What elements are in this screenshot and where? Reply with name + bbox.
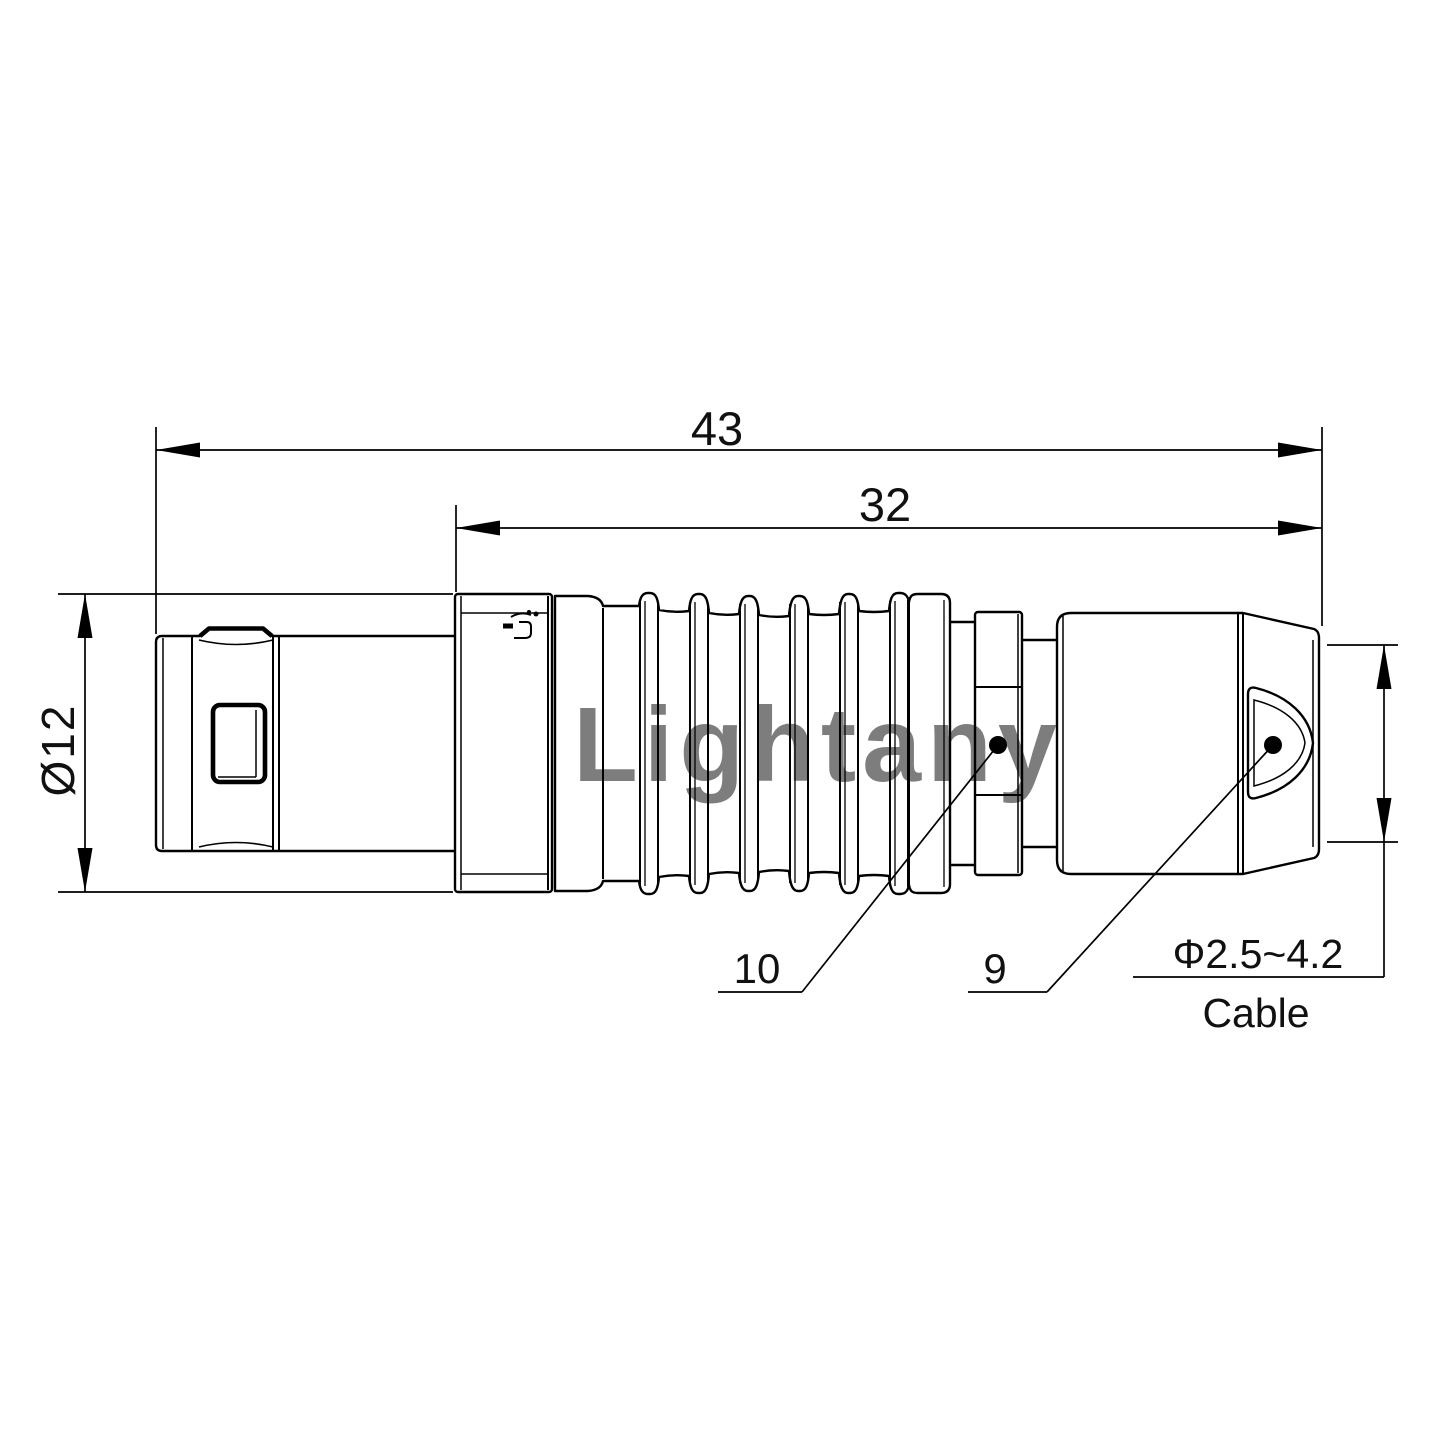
dim-body-diameter-label: Ø12 [32,704,84,797]
cable-diameter-label: Φ2.5~4.2 [1173,931,1344,977]
front-nose [156,629,456,852]
dim-rear-length: 32 [456,478,1322,592]
dim-rear-length-label: 32 [859,478,911,531]
part-label-9: 9 [983,945,1006,992]
dim-overall-length-label: 43 [691,402,743,455]
outer-shell [455,594,552,892]
dim-overall-length: 43 [156,402,1322,634]
part-label-10: 10 [734,945,781,992]
cable-caption-label: Cable [1202,990,1309,1036]
connector-technical-drawing: Lightany 43 32 Ø12 [0,0,1440,1440]
